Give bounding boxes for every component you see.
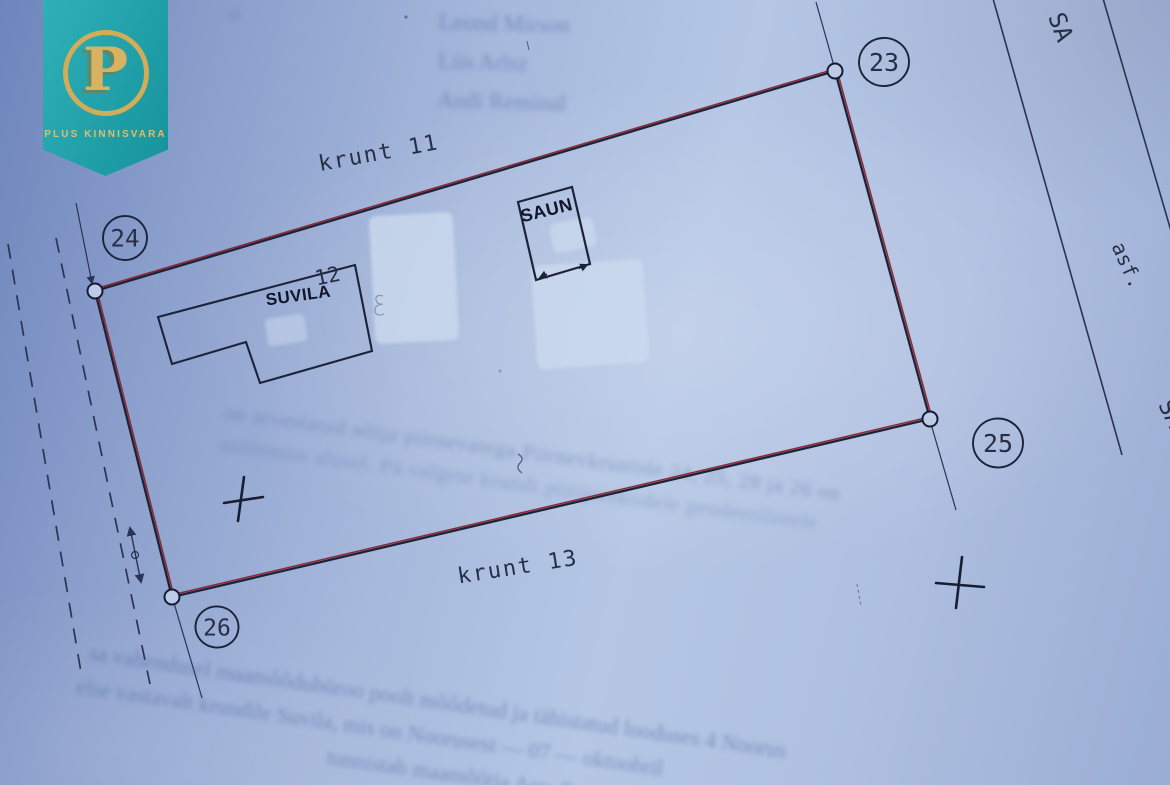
corner-marker-25: 25 xyxy=(971,417,1024,469)
erasure-patch xyxy=(549,216,598,254)
cadastral-drawing: 23 24 25 26 SAUN SUVILA 12 krunt 11 krun… xyxy=(0,0,1170,785)
survey-ray-23 xyxy=(816,2,834,66)
survey-ray-25 xyxy=(931,424,956,510)
street-edge-line-inner xyxy=(992,0,1122,455)
corner-point-23 xyxy=(828,64,843,79)
pen-dot xyxy=(404,15,407,18)
scanned-plot-plan-page: ni Leond Mirson Liis Arlsz Andi Reminal … xyxy=(0,0,1170,785)
corner-marker-number: 23 xyxy=(869,48,899,77)
corner-marker-number: 24 xyxy=(111,225,140,253)
street-name-fragment-top: SA xyxy=(1042,9,1079,47)
street-edge-line-outer xyxy=(1102,0,1170,248)
erasure-patch xyxy=(369,212,460,344)
pen-tick xyxy=(857,584,861,606)
brand-ribbon: P PLUS KINNISVARA xyxy=(43,0,168,176)
plot-boundary xyxy=(95,71,930,597)
corner-point-25 xyxy=(923,412,938,427)
access-double-arrow xyxy=(130,528,141,582)
erasure-patch xyxy=(531,258,650,370)
brand-logo-letter: P xyxy=(83,40,128,106)
pen-squiggle xyxy=(518,454,522,473)
cross-arm xyxy=(956,557,962,608)
corner-point-24 xyxy=(88,284,103,299)
reference-cross-right xyxy=(936,557,984,608)
reference-cross-left xyxy=(224,477,263,521)
street-name-fragment-right: SA xyxy=(1153,396,1170,432)
corner-point-26 xyxy=(165,590,180,605)
road-dashed-line-left-outer xyxy=(8,244,82,678)
parcel-label-krunt-13: krunt 13 xyxy=(456,546,580,590)
parcel-label-krunt-11: krunt 11 xyxy=(317,130,441,177)
road-surface-label-asf: asf. xyxy=(1107,238,1149,292)
pen-tick xyxy=(527,41,529,50)
survey-ray-24 xyxy=(76,203,92,283)
pen-dot xyxy=(499,370,502,373)
corner-marker-26: 26 xyxy=(193,604,240,649)
road-dashed-line-left-inner xyxy=(56,238,150,684)
corner-marker-number: 26 xyxy=(203,615,231,641)
cross-arm xyxy=(224,497,263,503)
erasure-patch xyxy=(264,313,308,346)
corner-marker-24: 24 xyxy=(101,214,149,262)
building-suvila-number: 12 xyxy=(313,262,343,291)
corner-marker-23: 23 xyxy=(857,36,912,89)
brand-logo-circle: P xyxy=(63,30,149,116)
brand-name: PLUS KINNISVARA xyxy=(43,129,168,140)
corner-marker-number: 25 xyxy=(983,429,1013,458)
